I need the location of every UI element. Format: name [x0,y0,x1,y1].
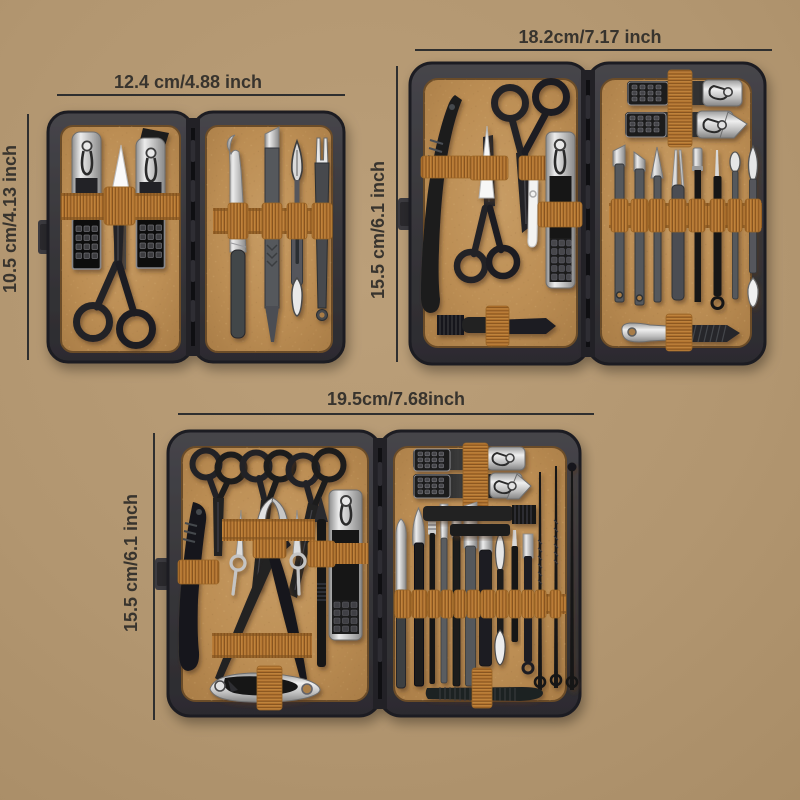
svg-text:15.5 cm/6.1 inch: 15.5 cm/6.1 inch [368,161,388,299]
svg-text:12.4 cm/4.88 inch: 12.4 cm/4.88 inch [114,72,262,92]
svg-text:19.5cm/7.68inch: 19.5cm/7.68inch [327,389,465,409]
svg-text:10.5 cm/4.13 inch: 10.5 cm/4.13 inch [0,145,20,293]
svg-text:18.2cm/7.17 inch: 18.2cm/7.17 inch [518,27,661,47]
svg-text:15.5 cm/6.1 inch: 15.5 cm/6.1 inch [121,494,141,632]
